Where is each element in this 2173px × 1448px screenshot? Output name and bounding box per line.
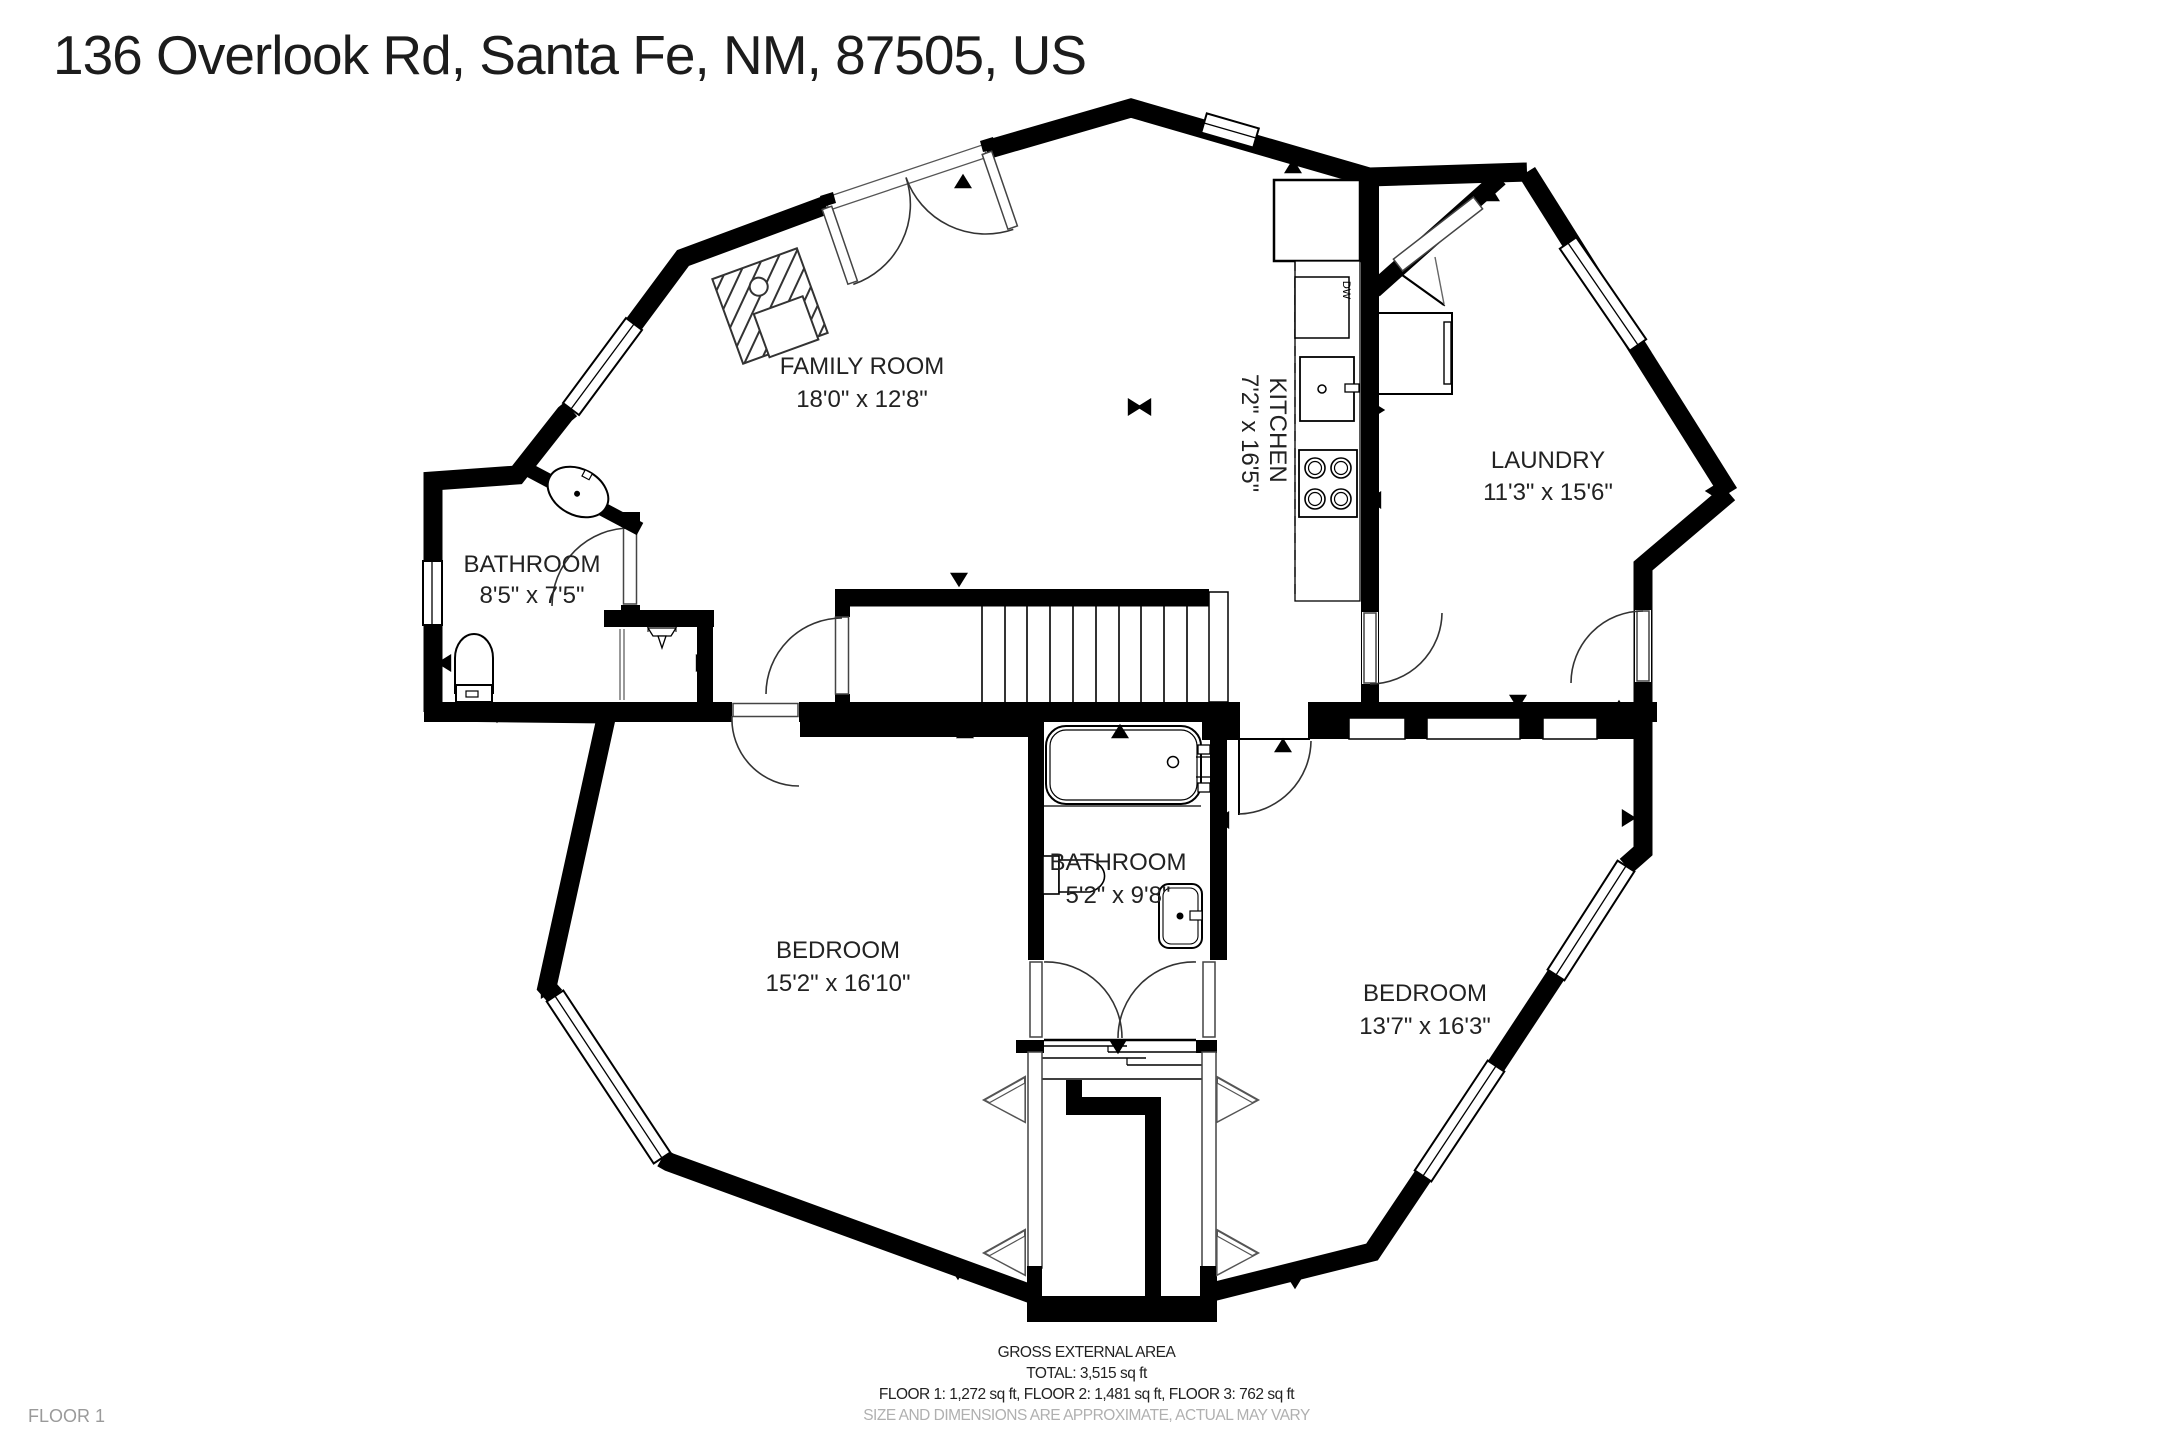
svg-text:18'0" x 12'8": 18'0" x 12'8" <box>796 386 928 413</box>
svg-text:7'2" x 16'5": 7'2" x 16'5" <box>1236 374 1263 492</box>
svg-text:BATHROOM: BATHROOM <box>464 551 601 578</box>
svg-text:DW: DW <box>1340 281 1352 300</box>
svg-text:BEDROOM: BEDROOM <box>1363 980 1487 1007</box>
svg-text:FAMILY ROOM: FAMILY ROOM <box>780 353 944 380</box>
svg-text:8'5" x 7'5": 8'5" x 7'5" <box>480 582 585 609</box>
svg-text:15'2" x 16'10": 15'2" x 16'10" <box>766 970 911 997</box>
svg-text:BATHROOM: BATHROOM <box>1050 849 1187 876</box>
svg-text:KITCHEN: KITCHEN <box>1264 377 1291 482</box>
svg-text:LAUNDRY: LAUNDRY <box>1491 447 1605 474</box>
svg-text:11'3" x 15'6": 11'3" x 15'6" <box>1483 479 1613 506</box>
svg-text:13'7" x 16'3": 13'7" x 16'3" <box>1359 1013 1491 1040</box>
svg-text:BEDROOM: BEDROOM <box>776 937 900 964</box>
svg-text:5'2" x 9'8": 5'2" x 9'8" <box>1066 882 1171 909</box>
